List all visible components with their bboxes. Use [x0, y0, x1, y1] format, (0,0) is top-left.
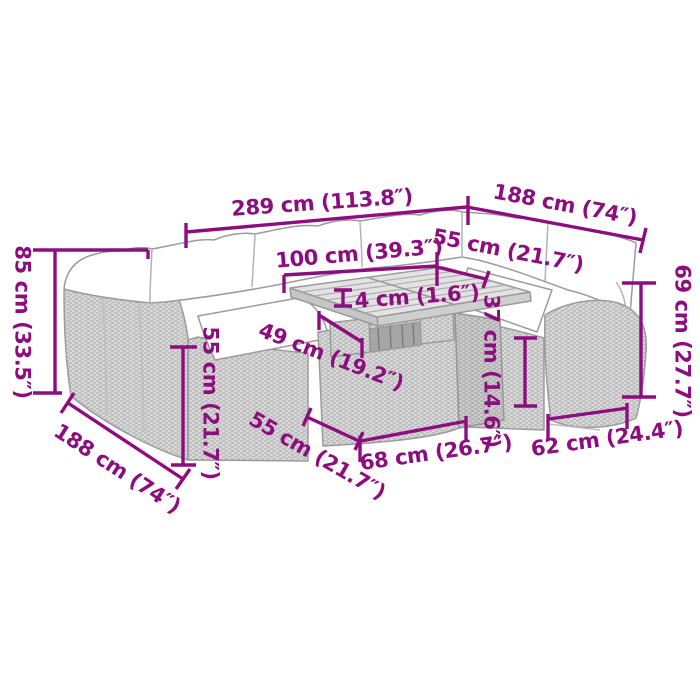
product-dimension-diagram: 289 cm (113.8″) 188 cm (74″) 85 cm (33.5…: [0, 0, 700, 700]
dim-label-69-right: 69 cm (27.7″): [672, 264, 693, 417]
dim-label-37: 37 cm (14.6″): [481, 294, 502, 447]
right-arm-rattan-panel: [545, 300, 646, 427]
dim-label-85-left: 85 cm (33.5″): [12, 245, 33, 398]
dim-label-55-left: 55 cm (21.7″): [200, 326, 221, 479]
